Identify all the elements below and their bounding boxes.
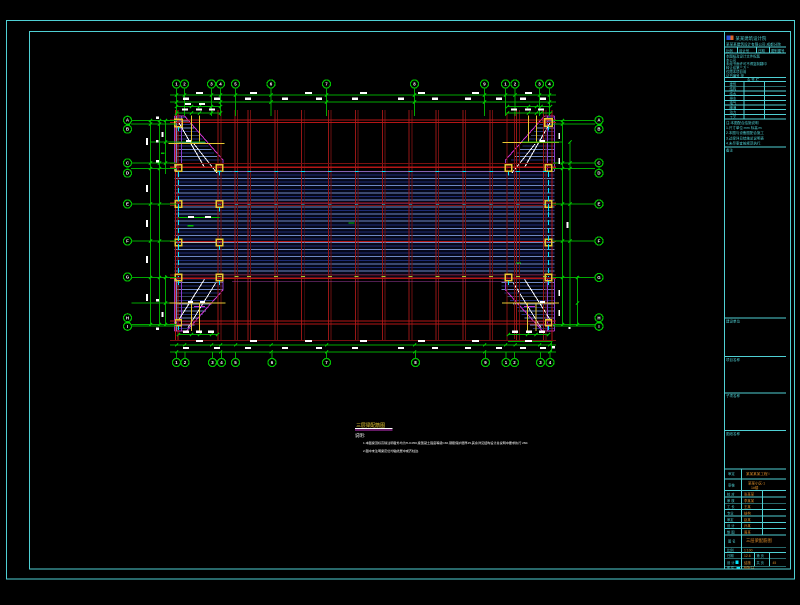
svg-text:1:100: 1:100 <box>744 548 753 552</box>
svg-text:H: H <box>126 315 129 320</box>
svg-text:设 计: 设 计 <box>727 523 735 528</box>
svg-text:张某某: 张某某 <box>744 491 755 496</box>
svg-text:审定: 审定 <box>728 471 735 476</box>
svg-text:设 计: 设 计 <box>727 560 735 565</box>
svg-text:E: E <box>126 202 129 207</box>
svg-text:F: F <box>126 239 129 244</box>
svg-text:说明:: 说明: <box>355 432 365 439</box>
svg-text:比例: 比例 <box>726 48 733 53</box>
svg-text:审定: 审定 <box>727 517 734 522</box>
svg-text:三层梁配筋图: 三层梁配筋图 <box>746 537 772 544</box>
svg-text:结构: 结构 <box>744 510 751 515</box>
svg-text:备注: 备注 <box>726 148 734 153</box>
svg-text:校 对: 校 对 <box>727 491 735 496</box>
svg-text:注:本图配合结施说明: 注:本图配合结施说明 <box>726 120 759 125</box>
svg-text:4.未尽事宜按规范执行.: 4.未尽事宜按规范执行. <box>726 140 761 145</box>
svg-text:工 长: 工 长 <box>727 504 735 509</box>
svg-text:第 页: 第 页 <box>757 553 764 558</box>
svg-text:动力: 动力 <box>730 110 737 115</box>
svg-text:I: I <box>127 324 128 329</box>
svg-text:1#楼: 1#楼 <box>751 485 759 490</box>
svg-text:1.尺寸单位:mm 标高:m: 1.尺寸单位:mm 标高:m <box>726 125 762 130</box>
svg-text:审 核: 审 核 <box>727 498 735 503</box>
svg-text:王某: 王某 <box>744 504 751 509</box>
svg-text:结构: 结构 <box>730 86 737 91</box>
svg-text:给水: 给水 <box>730 91 737 96</box>
svg-text:建筑: 建筑 <box>730 82 737 87</box>
svg-text:E: E <box>598 202 601 207</box>
svg-text:1.本图梁顶标高除注明者外均为H-0.050,梁混凝土强度等: 1.本图梁顶标高除注明者外均为H-0.050,梁混凝土强度等级C30,钢筋保护层… <box>363 440 528 445</box>
svg-text:某某小区-1: 某某小区-1 <box>748 481 765 486</box>
svg-text:电气: 电气 <box>730 100 737 105</box>
svg-text:日期: 日期 <box>727 553 734 558</box>
svg-text:G: G <box>126 275 130 280</box>
svg-text:I: I <box>598 324 599 329</box>
svg-text:G: G <box>597 275 601 280</box>
svg-text:B: B <box>597 127 600 132</box>
svg-text:周某: 周某 <box>744 530 751 535</box>
svg-text:日期: 日期 <box>758 48 765 53</box>
svg-text:图 号: 图 号 <box>727 565 734 570</box>
svg-text:赵某: 赵某 <box>744 517 751 522</box>
svg-text:45: 45 <box>773 561 777 565</box>
svg-text:图 名: 图 名 <box>728 539 736 544</box>
svg-text:图纸名称: 图纸名称 <box>726 431 740 436</box>
svg-text:共 页: 共 页 <box>757 560 764 565</box>
svg-text:某某某建筑设计有限公司 成都分院: 某某某建筑设计有限公司 成都分院 <box>726 41 781 46</box>
svg-text:2.图中未注明梁定位均轴线居中或齐柱边.: 2.图中未注明梁定位均轴线居中或齐柱边. <box>363 448 419 453</box>
svg-text:李某某: 李某某 <box>744 498 755 503</box>
svg-text:孙某: 孙某 <box>744 523 751 528</box>
svg-text:2.本图与设备图配合施工: 2.本图与设备图配合施工 <box>726 130 764 135</box>
svg-text:设计号: 设计号 <box>739 48 750 53</box>
svg-text:F: F <box>598 239 601 244</box>
svg-text:暖通: 暖通 <box>730 105 737 110</box>
svg-text:结施: 结施 <box>744 560 751 565</box>
svg-text:排水: 排水 <box>730 96 737 101</box>
svg-text:H: H <box>597 315 600 320</box>
svg-text:工艺: 工艺 <box>730 114 737 119</box>
svg-text:结施-12: 结施-12 <box>744 565 755 570</box>
svg-text:制 图: 制 图 <box>727 530 735 535</box>
svg-text:子项名称: 子项名称 <box>726 393 740 398</box>
svg-text:B: B <box>126 127 129 132</box>
svg-text:3.过梁详见结施总说明表: 3.过梁详见结施总说明表 <box>726 135 764 140</box>
svg-text:专业: 专业 <box>727 510 734 515</box>
svg-text:某某某某工程 I: 某某某某工程 I <box>746 471 770 476</box>
svg-text:比例: 比例 <box>727 547 734 552</box>
svg-text:D: D <box>126 171 129 176</box>
svg-text:图别图号: 图别图号 <box>771 48 785 53</box>
svg-text:D: D <box>597 171 600 176</box>
svg-text:12.6: 12.6 <box>744 554 751 558</box>
svg-text:某某建筑设计院: 某某建筑设计院 <box>736 35 767 42</box>
svg-text:建设单位: 建设单位 <box>726 318 740 323</box>
svg-text:审核: 审核 <box>728 483 735 488</box>
svg-text:项目名称: 项目名称 <box>726 357 740 362</box>
